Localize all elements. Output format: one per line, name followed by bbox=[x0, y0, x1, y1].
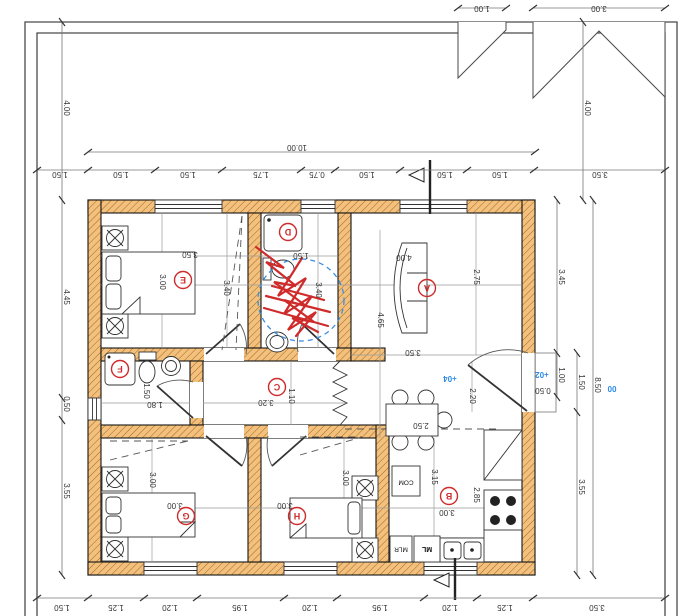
wc-f-fixtures bbox=[105, 352, 181, 385]
dim-f-height: 1.50 bbox=[142, 383, 151, 399]
opening-break-symbol bbox=[333, 361, 347, 425]
dim-h-height: 3.00 bbox=[341, 470, 350, 486]
dim-e-width: 3.50 bbox=[182, 250, 198, 259]
door-room-h bbox=[267, 425, 308, 466]
entrance-step bbox=[535, 353, 556, 412]
svg-text:A: A bbox=[423, 283, 430, 293]
window bbox=[424, 562, 477, 575]
level-plus02: +02 bbox=[535, 370, 549, 379]
dim-d-width: 1.50 bbox=[293, 251, 309, 260]
room-label-c: C bbox=[269, 379, 286, 396]
dim-bottom-right: 3.50 bbox=[589, 603, 605, 612]
small-canopy bbox=[458, 22, 506, 78]
dim-b-height2: 2.85 bbox=[472, 487, 481, 503]
window bbox=[284, 562, 337, 575]
dim-left-050: 0.50 bbox=[62, 396, 71, 412]
dim-top-1: 1.50 bbox=[113, 170, 129, 179]
dim-bottom-4: 1.20 bbox=[302, 603, 318, 612]
floor-plan-drawing: 1.00 3.00 10.00 1.50 1.50 1.50 1.75 0.75… bbox=[0, 0, 688, 616]
bed-room-h bbox=[290, 476, 378, 562]
dim-g-height: 3.00 bbox=[148, 472, 157, 488]
svg-text:C: C bbox=[273, 382, 280, 392]
dim-left-355: 3.55 bbox=[62, 483, 71, 499]
floor-plan-page: 1.00 3.00 10.00 1.50 1.50 1.50 1.75 0.75… bbox=[0, 0, 688, 616]
level-plus04: +04 bbox=[443, 374, 457, 383]
dining-table bbox=[386, 390, 452, 450]
dim-c-height: 1.10 bbox=[287, 388, 296, 404]
dim-c-width: 3.20 bbox=[258, 398, 274, 407]
svg-text:D: D bbox=[284, 227, 291, 237]
dim-table: 2.50 bbox=[413, 421, 429, 430]
dim-canopy-small: 1.00 bbox=[474, 4, 490, 13]
svg-text:F: F bbox=[117, 364, 123, 374]
dim-a-width2: 3.50 bbox=[405, 348, 421, 357]
washbasin-icon bbox=[266, 332, 288, 352]
dim-top-7: 1.50 bbox=[492, 170, 508, 179]
dim-top-right: 3.50 bbox=[592, 170, 608, 179]
dim-bottom-6: 1.20 bbox=[442, 603, 458, 612]
dim-d-height: 3.40 bbox=[314, 282, 323, 298]
dim-step-depth: 0.50 bbox=[535, 386, 551, 395]
dim-left-445: 4.45 bbox=[62, 289, 71, 305]
label-ml: ML bbox=[421, 545, 432, 552]
dim-top-6: 1.50 bbox=[437, 170, 453, 179]
dim-right-355: 3.55 bbox=[577, 479, 586, 495]
furniture bbox=[102, 215, 522, 562]
washbasin-icon bbox=[162, 357, 181, 376]
dim-b-height: 3.15 bbox=[430, 469, 439, 485]
toilet-tank bbox=[139, 352, 156, 360]
entrance-canopies bbox=[458, 22, 665, 98]
dim-e-height: 3.00 bbox=[158, 274, 167, 290]
dim-h-width: 3.00 bbox=[277, 501, 293, 510]
svg-text:B: B bbox=[445, 491, 452, 501]
dim-bottom-2: 1.20 bbox=[162, 603, 178, 612]
dim-right-100: 1.00 bbox=[557, 367, 566, 383]
room-label-b: B bbox=[441, 488, 458, 505]
svg-text:H: H bbox=[294, 511, 301, 521]
entrance-door bbox=[468, 350, 535, 412]
dim-overall-width: 10.00 bbox=[286, 143, 307, 152]
dim-right-150: 1.50 bbox=[577, 374, 586, 390]
toilet-icon bbox=[139, 361, 155, 383]
dim-bottom-3: 1.95 bbox=[232, 603, 248, 612]
dim-bottom-1: 1.25 bbox=[108, 603, 124, 612]
door-room-d bbox=[297, 324, 336, 361]
window bbox=[88, 398, 101, 420]
window bbox=[144, 562, 197, 575]
door-room-f bbox=[157, 380, 203, 418]
dim-top-5: 1.50 bbox=[359, 170, 375, 179]
dim-a-height: 2.75 bbox=[472, 269, 481, 285]
dim-left-4: 4.00 bbox=[62, 100, 71, 116]
dim-a-depth: 4.65 bbox=[376, 312, 385, 328]
dim-e-closet: 3.40 bbox=[222, 280, 231, 296]
dim-a-width: 4.00 bbox=[396, 253, 412, 262]
dim-right-345: 3.45 bbox=[557, 269, 566, 285]
dim-top-margin: 1.50 bbox=[52, 170, 68, 179]
dim-top-4: 0.75 bbox=[309, 170, 325, 179]
dim-g-width: 3.00 bbox=[167, 501, 183, 510]
dim-bottom-7: 1.25 bbox=[497, 603, 513, 612]
label-mlr: MLR bbox=[394, 545, 408, 552]
svg-text:G: G bbox=[182, 511, 189, 521]
level-zero: 00 bbox=[607, 384, 616, 393]
dim-top-3: 1.75 bbox=[253, 170, 269, 179]
door-room-g bbox=[204, 425, 247, 466]
label-com: COM bbox=[398, 478, 413, 485]
dim-f-width: 1.80 bbox=[147, 400, 163, 409]
dim-right-4: 4.00 bbox=[583, 100, 592, 116]
dim-entrance-door: 2.20 bbox=[468, 388, 477, 404]
kitchen-units bbox=[390, 430, 522, 562]
dim-bottom-5: 1.95 bbox=[372, 603, 388, 612]
window bbox=[155, 200, 222, 213]
dim-right-850: 8.50 bbox=[593, 377, 602, 393]
dim-bottom-margin: 1.50 bbox=[54, 603, 70, 612]
svg-text:E: E bbox=[180, 275, 186, 285]
window bbox=[400, 200, 467, 213]
dim-b-width: 3.00 bbox=[439, 508, 455, 517]
window bbox=[301, 200, 335, 213]
stove bbox=[484, 490, 522, 530]
dim-top-2: 1.50 bbox=[180, 170, 196, 179]
dim-canopy-large: 3.00 bbox=[591, 4, 607, 13]
